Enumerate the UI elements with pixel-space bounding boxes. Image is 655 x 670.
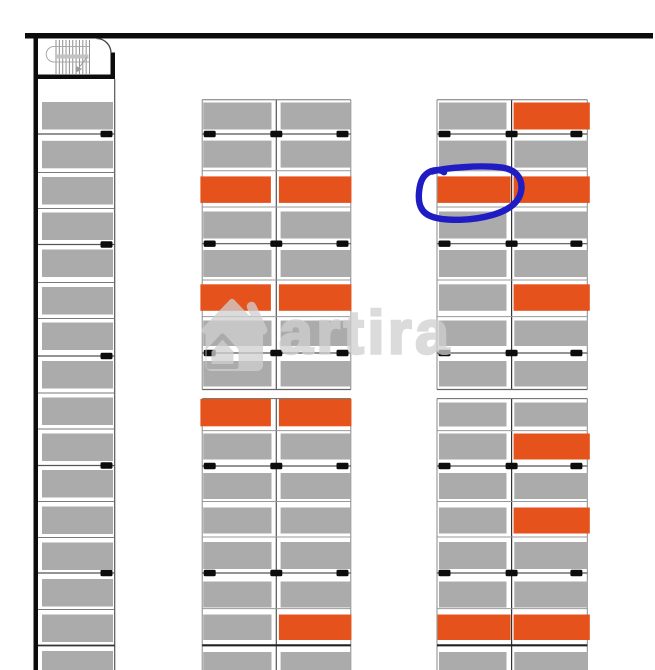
svg-text:artira: artira xyxy=(279,299,453,367)
